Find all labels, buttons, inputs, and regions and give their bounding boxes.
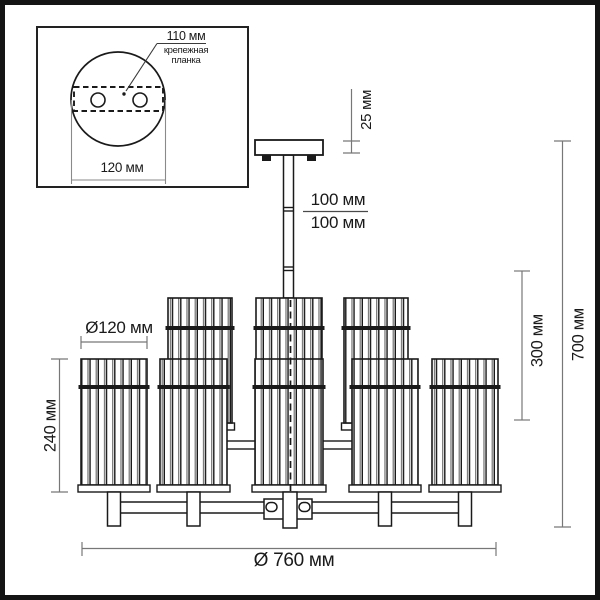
dim-shade-height: 240 мм <box>42 391 59 461</box>
shade-front-2 <box>157 359 230 492</box>
canopy-circle <box>71 52 165 146</box>
dim-canopy-height: 25 мм <box>359 75 375 145</box>
dim-body-drop: 300 мм <box>529 306 546 376</box>
inset-dim-110: 110 мм <box>151 30 221 43</box>
shade-front-center <box>252 359 326 492</box>
shade-front-5 <box>429 359 501 492</box>
shade-front-1 <box>78 359 150 492</box>
shade-front-4 <box>349 359 421 492</box>
front-arms <box>108 492 472 528</box>
hub-hook-left <box>266 503 277 512</box>
drawing-layer <box>0 0 600 600</box>
dim-rod-section-2: 100 мм <box>303 214 373 232</box>
dim-total-height: 700 мм <box>570 300 587 370</box>
bracket-hole-left <box>91 93 105 107</box>
hub-hook-right <box>299 503 310 512</box>
inset-dim-120: 120 мм <box>87 161 157 175</box>
bracket-center-point <box>122 92 125 95</box>
center-stem <box>283 492 297 528</box>
technical-drawing: 110 мм крепежная планка 120 мм 25 мм 100… <box>0 0 600 600</box>
bracket-label-line2: планка <box>146 56 226 66</box>
dim-fixture-diameter: Ø 760 мм <box>224 551 364 571</box>
dim-rod-section-1: 100 мм <box>303 191 373 209</box>
bracket-hole-right <box>133 93 147 107</box>
inset-bracket-label: крепежная планка <box>146 46 226 66</box>
dim-shade-diameter: Ø120 мм <box>69 319 169 337</box>
hanging-rod <box>284 155 294 298</box>
